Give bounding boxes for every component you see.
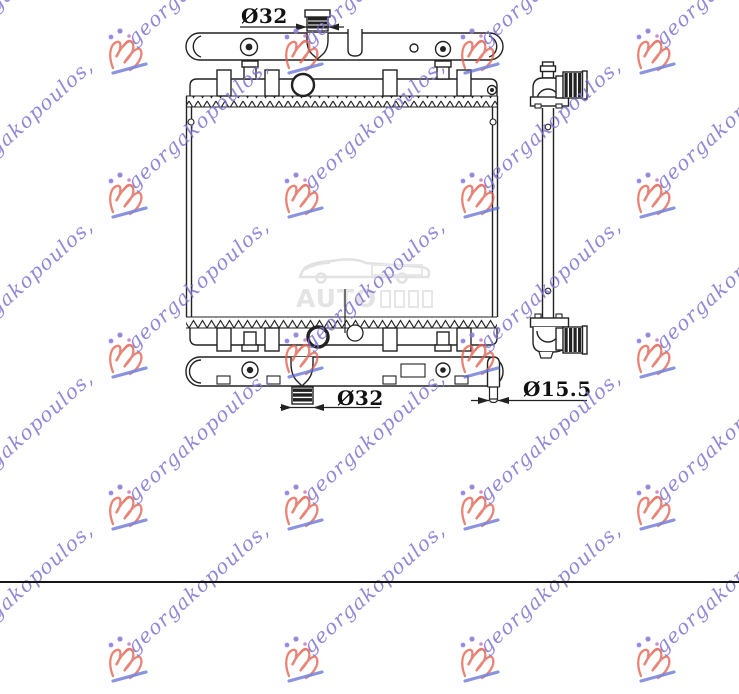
watermark-tile: georgakopoulos, — [456, 634, 666, 694]
watermark-logo-icon — [632, 634, 678, 684]
watermark-tile: georgakopoulos, — [632, 634, 739, 694]
radiator-core — [187, 96, 498, 317]
radiator-technical-drawing — [0, 0, 739, 583]
radiator-product-image: AUTO — [0, 0, 739, 583]
watermark-logo-icon — [104, 634, 150, 684]
watermark-tile: georgakopoulos, — [0, 634, 138, 694]
bottom-tank — [186, 357, 503, 386]
dimension-label-top-inlet: Ø32 — [241, 6, 288, 26]
side-view — [531, 62, 588, 358]
dimension-label-drain: Ø15.5 — [523, 379, 592, 399]
watermark-tile: georgakopoulos, — [280, 634, 490, 694]
top-tank — [186, 29, 503, 60]
watermark-logo-icon — [280, 634, 326, 684]
core-fin-strip-top — [186, 96, 497, 107]
core-fin-strip-bottom — [186, 317, 497, 328]
drain-pipe — [488, 357, 500, 403]
core-top-header — [190, 61, 497, 96]
dimension-label-bottom-outlet: Ø32 — [337, 388, 384, 408]
watermark-tile: georgakopoulos, — [104, 634, 314, 694]
watermark-logo-icon — [456, 634, 502, 684]
